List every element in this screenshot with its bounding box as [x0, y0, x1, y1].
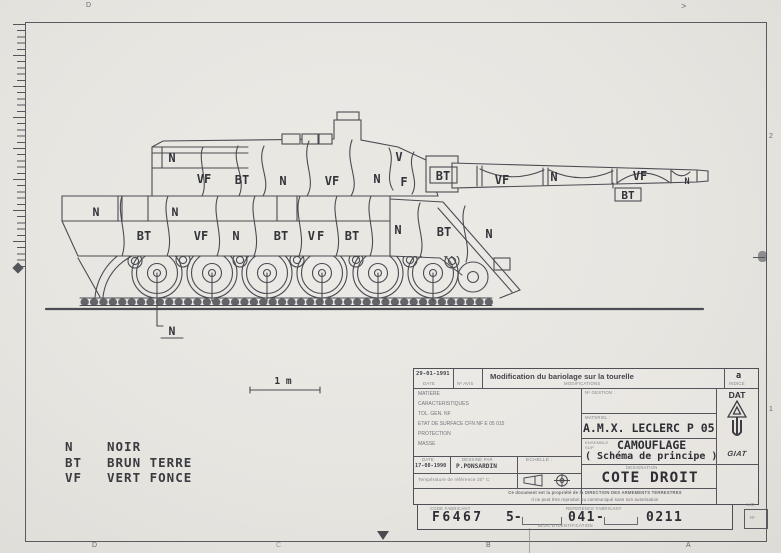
- ensemble-label: ENSEMBLE SUP: [585, 440, 615, 450]
- camo-label: N: [172, 205, 179, 219]
- indice-label: INDICE: [729, 381, 745, 386]
- projection-symbol-icon: [521, 474, 577, 487]
- camo-label: BT: [137, 229, 151, 243]
- spec-masse: MASSE: [418, 441, 436, 447]
- camo-label: N: [550, 170, 557, 184]
- legend-abbr: BT: [65, 455, 107, 471]
- avis-label: Nº AVIS: [457, 381, 474, 386]
- reference-blank-bracket: [604, 517, 638, 525]
- revision-date: 29-01-1991: [416, 371, 450, 377]
- ensemble-sub-value: ( Schéma de principe ): [585, 451, 717, 462]
- right-border-tick: [753, 257, 765, 258]
- camo-label: N: [394, 223, 401, 237]
- materiel-label: MATERIEL :: [585, 415, 610, 420]
- modifications-label: MODIFICATIONS: [564, 381, 600, 386]
- legend-abbr: N: [65, 439, 107, 455]
- camo-label: BT: [345, 229, 359, 243]
- camo-label: VF: [308, 229, 326, 243]
- legend-row: N NOIR: [65, 439, 192, 455]
- drawn-by: P.PONSARDIN: [456, 463, 497, 470]
- camo-label: F: [400, 175, 407, 189]
- gun-barrel: [426, 156, 708, 201]
- issue-date: 17-08-1990: [415, 463, 446, 469]
- dat-label: DAT: [716, 390, 758, 400]
- drawing-sheet: D > 2 1 D C B A: [0, 0, 781, 553]
- property-notice-line1: Ce document est la propriété de la DIREC…: [474, 490, 716, 495]
- camo-label: BT: [437, 225, 451, 239]
- spec-protection: PROTECTION: [418, 431, 451, 437]
- camo-label: VF: [194, 229, 208, 243]
- hull-skirts: [62, 196, 470, 258]
- temperature-note: Température de référence 20° C: [418, 477, 490, 482]
- camo-label: N: [485, 227, 492, 241]
- gestion-label: Nº GESTION :: [585, 390, 615, 395]
- camo-label: BT: [436, 169, 450, 183]
- camo-label: N: [373, 172, 380, 186]
- camo-label: BT: [274, 229, 288, 243]
- camo-label: BT: [235, 173, 249, 187]
- scale-label: 1 m: [274, 376, 291, 387]
- camo-label: N: [93, 205, 100, 219]
- bloc-identification-label: BLOC D'IDENTIFICATION: [538, 523, 593, 528]
- drawn-by-label: DESSINE PAR: [462, 457, 493, 462]
- camo-label: N: [279, 174, 286, 188]
- ground-line: [46, 298, 703, 309]
- camo-label: N: [169, 324, 176, 338]
- indice-value: a: [736, 371, 741, 381]
- camo-label: V: [395, 150, 402, 164]
- numero-box: Nº: [744, 509, 768, 529]
- revision-date-label: DATE: [423, 381, 435, 386]
- ensemble-value: CAMOUFLAGE: [617, 438, 686, 452]
- reference-part-1: 5-: [506, 510, 522, 525]
- modification-text: Modification du bariolage sur la tourell…: [490, 372, 634, 381]
- camo-label: VF: [197, 172, 211, 186]
- legend-name: VERT FONCE: [107, 470, 192, 486]
- spec-caracteristiques: CARACTERISTIQUES: [418, 401, 469, 407]
- camo-label: N: [684, 177, 689, 187]
- reference-part-3: 0211: [646, 510, 683, 525]
- designation-value: COTE DROIT: [584, 470, 716, 486]
- property-notice-line2: Il ne peut être reproduit ou communiqué …: [474, 497, 716, 502]
- dat-arrow-icon: [727, 400, 747, 442]
- camo-label: BT: [621, 189, 635, 202]
- lio-label: LIO: [747, 502, 755, 507]
- giat-logo: GIAT: [715, 449, 758, 458]
- scale-bar: [250, 387, 320, 393]
- scale-cell-label: ECHELLE :: [526, 458, 552, 463]
- camo-label: N: [168, 151, 175, 165]
- spec-tolerances: TOL. GEN. NF: [418, 411, 451, 417]
- camo-label: VF: [495, 173, 509, 187]
- camo-label: N: [232, 229, 239, 243]
- camo-label: VF: [325, 174, 339, 188]
- camo-legend: N NOIR BT BRUN TERRE VF VERT FONCE: [65, 439, 192, 486]
- legend-row: VF VERT FONCE: [65, 470, 192, 486]
- legend-row: BT BRUN TERRE: [65, 455, 192, 471]
- materiel-value: A.M.X. LECLERC P 05: [583, 421, 715, 435]
- legend-name: NOIR: [107, 439, 141, 455]
- legend-name: BRUN TERRE: [107, 455, 192, 471]
- numero-label: Nº: [750, 515, 755, 520]
- spec-matiere: MATIERE: [418, 391, 440, 397]
- code-fabricant-value: F6467: [432, 510, 484, 525]
- title-block: 29-01-1991 DATE Nº AVIS Modification du …: [413, 368, 759, 505]
- camo-label: VF: [633, 169, 647, 183]
- issue-date-label: DATE: [422, 457, 434, 462]
- identification-block: CODE FABRICANT F6467 REFERENCE FABRICANT…: [417, 504, 733, 530]
- spec-etat-surface: ETAT DE SURFACE CFN NF E 05 015: [418, 421, 504, 427]
- legend-abbr: VF: [65, 470, 107, 486]
